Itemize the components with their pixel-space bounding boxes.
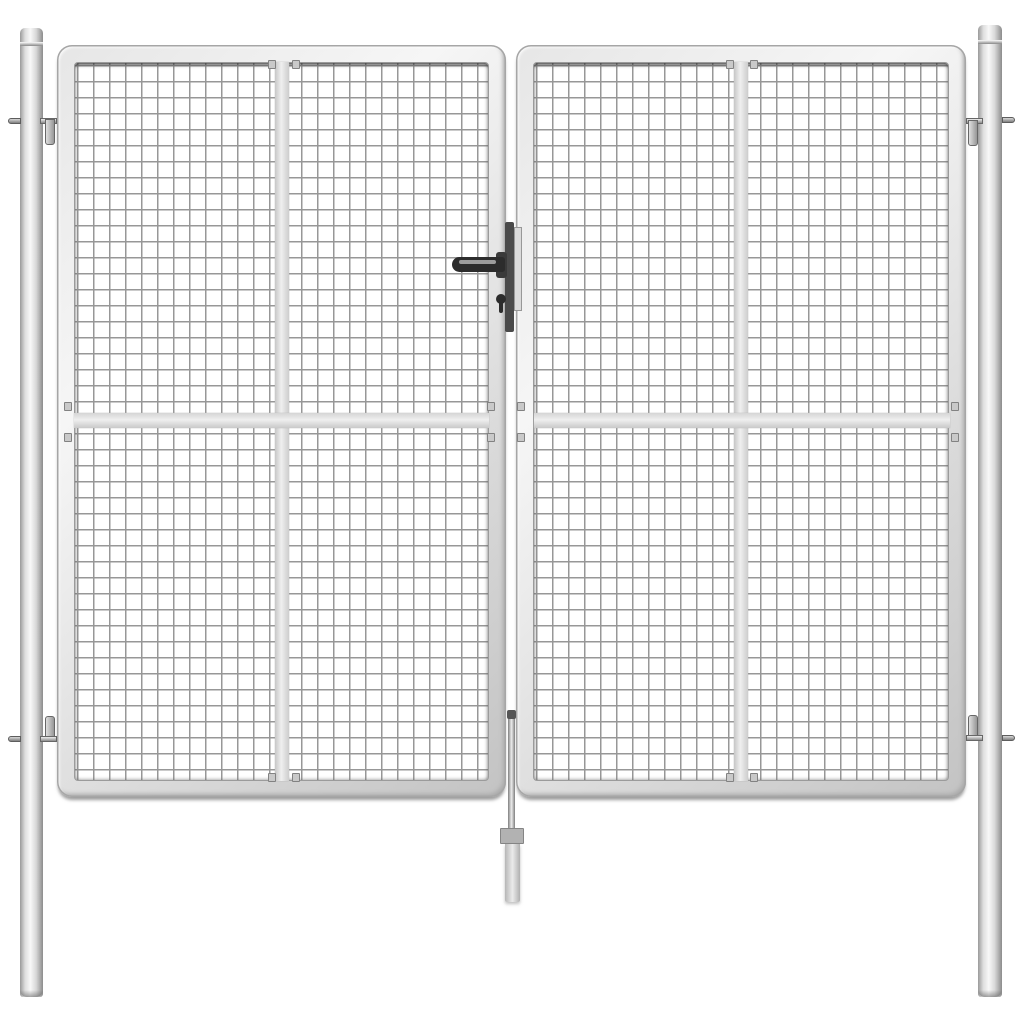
gate-handle xyxy=(452,257,505,272)
keyhole-tail xyxy=(499,301,503,313)
drop-rod xyxy=(508,716,515,830)
mesh-clip xyxy=(64,433,72,442)
left-post-foot xyxy=(20,990,43,997)
mesh-clip xyxy=(517,433,525,442)
mesh-clip xyxy=(64,402,72,411)
hinge-arm-bottom-right xyxy=(966,735,983,741)
product-image xyxy=(0,0,1024,1024)
mesh-clip xyxy=(268,60,276,69)
strike-plate xyxy=(514,227,522,311)
mesh-clip xyxy=(951,402,959,411)
hinge-bracket-top-left xyxy=(45,119,55,145)
hinge-bracket-top-right xyxy=(968,120,978,146)
mesh-clip xyxy=(750,60,758,69)
mesh-clip xyxy=(517,402,525,411)
mesh-clip xyxy=(951,433,959,442)
drop-rod-guide-block xyxy=(500,828,524,844)
mesh-clip xyxy=(487,433,495,442)
hinge-pin-top-left xyxy=(8,118,21,124)
horizontal-brace-bar-left xyxy=(74,413,489,428)
hinge-pin-top-right xyxy=(1002,117,1015,123)
left-post xyxy=(20,28,43,997)
mesh-clip xyxy=(268,773,276,782)
mesh-clip xyxy=(292,773,300,782)
horizontal-brace-bar-right xyxy=(534,413,950,428)
left-post-cap-ring xyxy=(20,42,43,46)
drop-rod-ground-sleeve xyxy=(505,844,520,902)
hinge-arm-bottom-left xyxy=(40,736,57,742)
mesh-clip xyxy=(750,773,758,782)
mesh-clip xyxy=(726,60,734,69)
drop-rod-cap xyxy=(507,710,516,719)
right-post xyxy=(978,25,1002,997)
right-post-foot xyxy=(978,990,1002,997)
hinge-pin-bottom-right xyxy=(1002,735,1015,741)
right-post-cap-ring xyxy=(978,40,1002,44)
lock-faceplate xyxy=(505,222,514,332)
hinge-pin-bottom-left xyxy=(8,736,21,742)
mesh-clip xyxy=(487,402,495,411)
mesh-clip xyxy=(726,773,734,782)
mesh-clip xyxy=(292,60,300,69)
handle-highlight xyxy=(459,260,496,264)
